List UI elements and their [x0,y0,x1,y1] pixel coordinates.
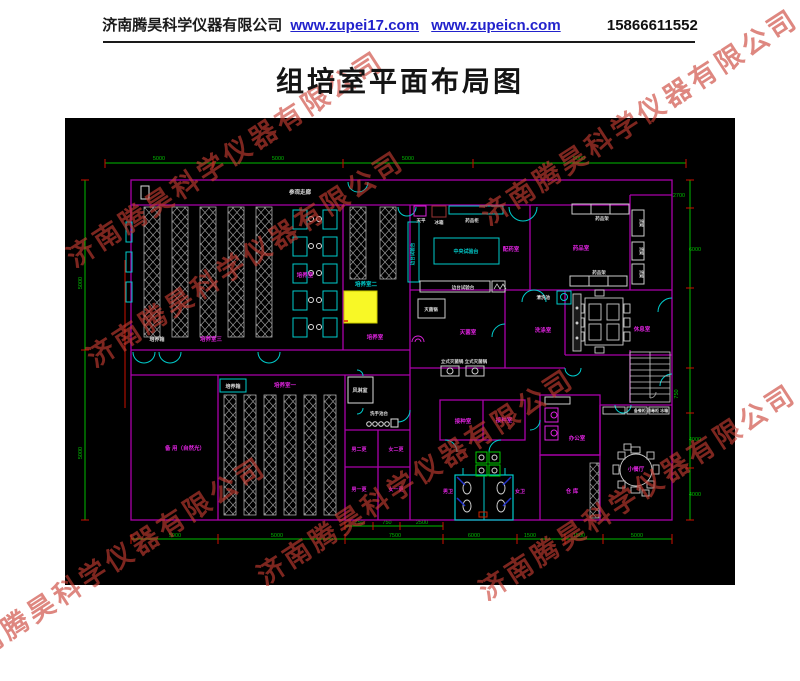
door-arc-icon [489,440,501,452]
double-door-icon [159,352,181,363]
double-door-icon [565,368,581,376]
label-prep-room: 配药室 [503,245,520,253]
label-culture-room-1: 培养室一 [274,381,297,389]
double-door-icon [258,352,280,363]
dim-bottom-3: 7500 [389,533,401,539]
phone-number: 15866611552 [607,17,698,34]
double-door-icon [509,207,537,221]
dim-inner-2: 750 [382,520,391,526]
dim-bottom-2: 5000 [271,533,283,539]
label-washing-room: 洗涤室 [535,326,552,334]
link-zupeicn[interactable]: www.zupeicn.com [431,17,560,34]
incubator-column [317,210,338,337]
label-change-m2: 男二更 [350,446,367,453]
label-spare-room: 备 用（自然光） [164,444,205,452]
label-culture-room-2b: 培养室 [367,333,384,341]
label-incubator-3: 培养箱 [149,336,164,343]
label-washstand: 洗手池台 [370,410,388,417]
drawing-title: 组培室平面布局图 [0,60,800,100]
label-balance: 天平 [417,217,426,224]
double-door-icon [398,207,416,216]
corner-symbol [141,186,149,199]
label-cabinet-1: 货架 [639,218,645,227]
dim-bottom-6: 1500 [573,533,585,539]
label-culture-room: 培养室 [297,271,314,279]
dim-top-4: 5000 [573,156,585,162]
label-corridor: 参观走廊 [289,188,312,196]
label-office: 办公室 [569,434,586,442]
label-rest-room: 休息室 [633,325,651,333]
label-shelf-top: 药品架 [595,215,609,222]
dim-top-2: 5000 [272,156,284,162]
label-sterilizer: 灭菌锅 [424,306,438,313]
label-sterilization-room: 灭菌室 [459,328,477,336]
label-wash-sink: 清洗池 [537,294,551,301]
label-wc-female: 女卫 [515,488,525,495]
office-furniture [545,397,570,440]
label-air-shower: 风淋室 [352,387,367,394]
label-inoculation-1: 接种室 [455,417,472,425]
label-cabinet-2: 货架 [639,246,645,255]
dining-furniture [603,407,669,496]
label-change-f1: 女一更 [388,486,404,493]
dim-inner-3: 2500 [416,520,428,526]
label-autoclaves: 立式灭菌锅 立式灭菌锅 [441,358,488,365]
label-med-cabinet: 药品柜 [465,217,479,224]
dim-right-5: 4000 [689,492,701,498]
door-arc-icon [530,420,540,430]
label-culture-room-2: 培养室二 [355,280,378,288]
dim-left-2: 5000 [78,447,84,459]
culture-racks [144,207,599,518]
label-inoculation-2: 接种室 [496,416,513,424]
door-arc-icon [445,440,457,452]
double-door-icon [133,352,155,363]
dim-bottom-4: 6000 [468,533,480,539]
floorplan-svg: 5000 5000 5000 5000 5000 5000 7500 6000 … [65,118,735,585]
dim-bottom-7: 5000 [631,533,643,539]
double-door-icon [615,405,631,413]
door-arc-icon [357,408,363,414]
company-name: 济南腾昊科学仪器有限公司 [102,17,282,34]
dim-bottom-1: 5000 [169,533,181,539]
label-dining-cabinets: 备餐柜 消毒柜 冰箱 [633,407,668,413]
label-storage: 仓 库 [565,487,579,495]
label-central-bench: 中央试验台 [453,248,478,255]
dim-right-3: 750 [674,389,680,398]
page: { "header": { "company": "济南腾昊科学仪器有限公司",… [0,0,800,600]
dim-inner-1: 750 [354,520,363,526]
door-arc-icon [658,298,672,312]
label-change-m1: 男一更 [350,486,367,493]
highlight-square[interactable] [344,291,377,323]
dim-right-2: 6000 [689,247,701,253]
door-arc-icon [492,324,505,337]
door-arc-icon [398,410,410,422]
label-side-bench: 边台试验台 [451,284,475,291]
dim-top-3: 5000 [402,156,414,162]
label-change-f2: 女二更 [388,446,404,453]
cad-floorplan-canvas: 5000 5000 5000 5000 5000 5000 7500 6000 … [65,118,735,585]
dim-right-4: 4000 [689,437,701,443]
label-left-bench: 边台试验台 [409,242,416,266]
label-wc-male: 男卫 [442,488,453,495]
page-header: 济南腾昊科学仪器有限公司 www.zupei17.com www.zupeicn… [0,14,800,35]
dim-top-1: 5000 [153,156,165,162]
double-door-icon [348,182,368,192]
label-cabinet-3: 货架 [639,269,645,278]
dim-right-1: 2700 [673,193,685,199]
label-culture-room-3: 培养室三 [200,335,223,343]
label-incubator-1: 培养箱 [225,383,240,390]
wash-stations [476,452,500,476]
dim-bottom-5: 1500 [524,533,536,539]
dim-left-1: 5000 [78,277,84,289]
label-medicine-room: 药品室 [573,244,590,252]
label-dining: 小餐厅 [628,465,645,473]
label-fridge: 冰箱 [435,219,444,226]
rest-room-furniture [573,290,630,353]
label-shelf-bottom: 药品架 [592,269,606,276]
header-divider [103,41,695,43]
link-zupei17[interactable]: www.zupei17.com [290,17,419,34]
